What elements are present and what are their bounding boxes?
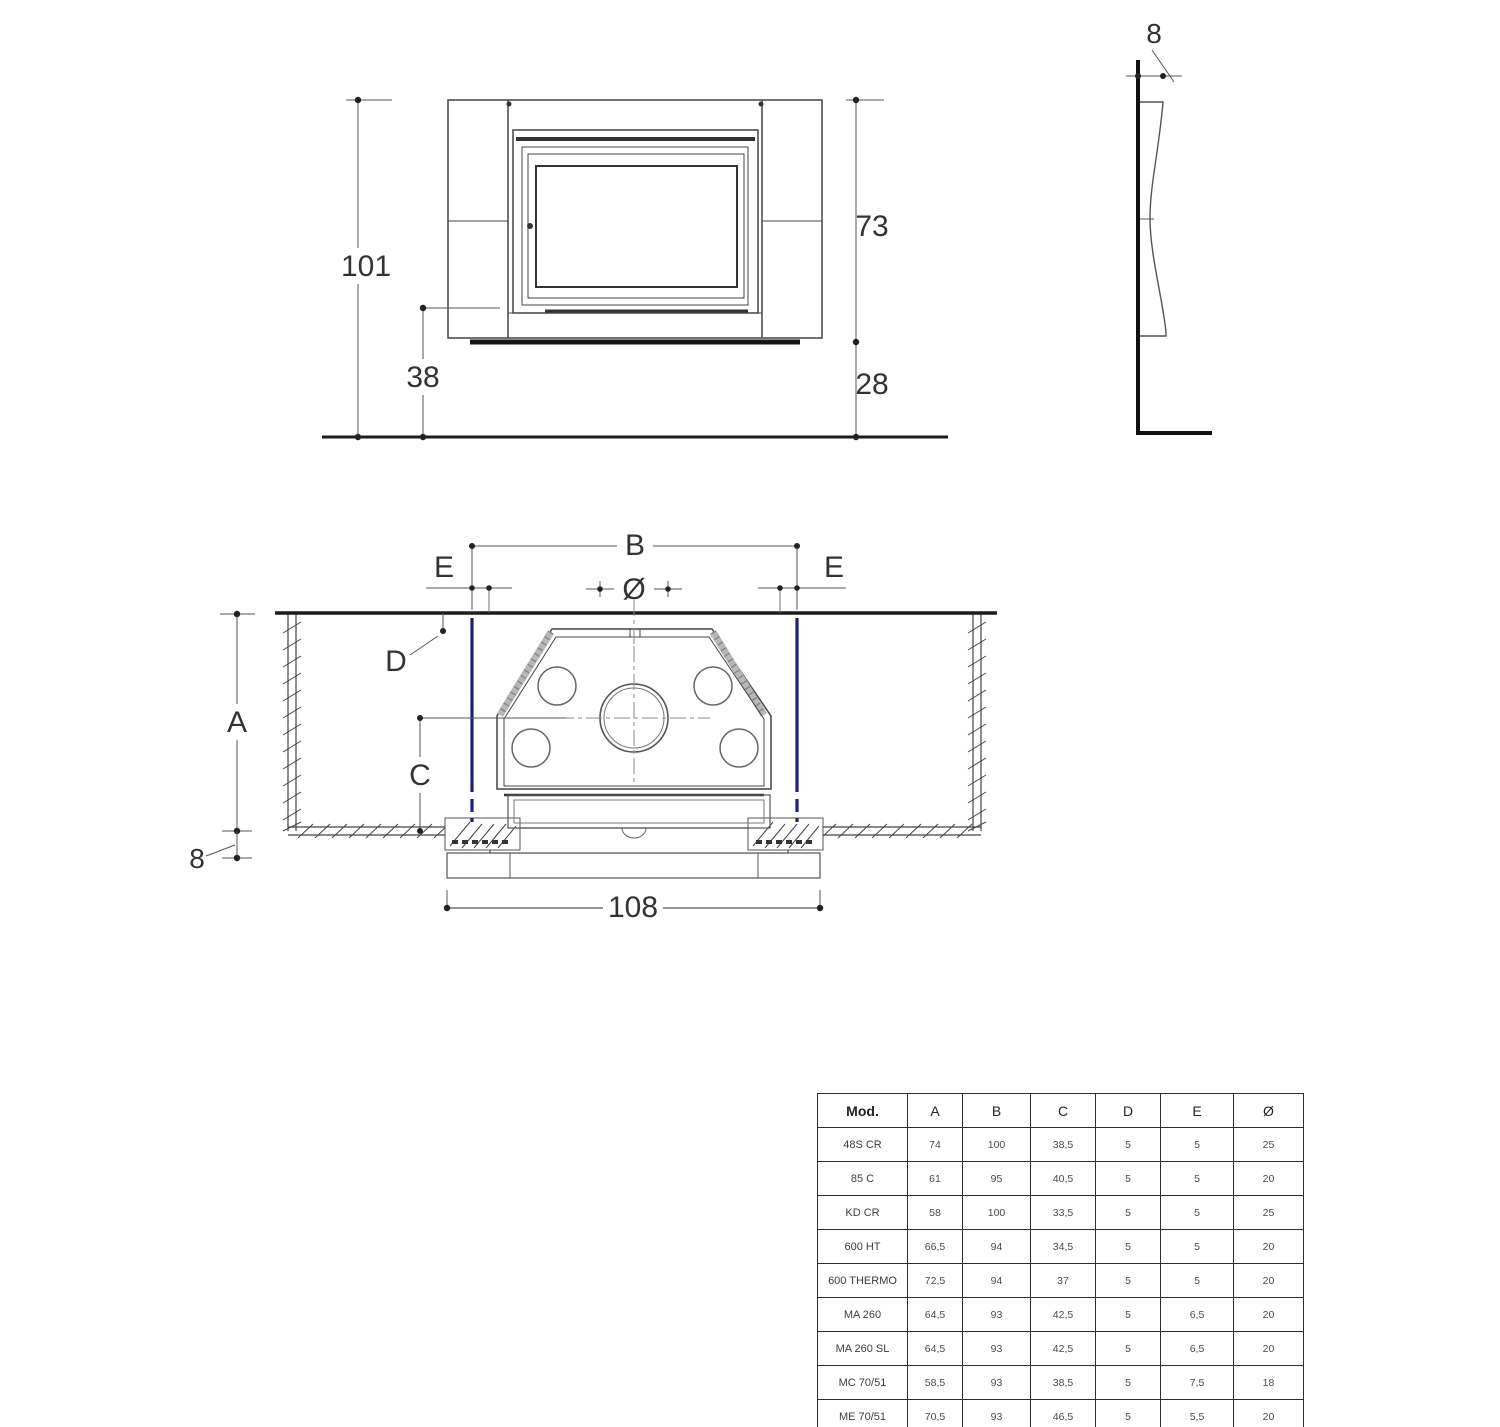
table-header-c: C: [1031, 1094, 1096, 1128]
table-header-a: A: [908, 1094, 963, 1128]
table-row: MA 260 64,5 93 42,5 5 6,5 20: [818, 1298, 1304, 1332]
firebox-door: [508, 130, 762, 313]
model-name: 600 THERMO: [818, 1264, 908, 1298]
dim-C-label: C: [409, 759, 431, 792]
dim-101: 101: [340, 97, 392, 440]
table-row: 600 HT 66,5 94 34,5 5 5 20: [818, 1230, 1304, 1264]
dim-108: 108: [444, 889, 823, 925]
table-header-diameter: Ø: [1234, 1094, 1304, 1128]
table-row: KD CR 58 100 33,5 5 5 25: [818, 1196, 1304, 1230]
dim-diameter-label: Ø: [622, 573, 645, 606]
table-row: ME 70/51 70,5 93 46,5 5 5,5 20: [818, 1400, 1304, 1427]
front-view-drawing: 101 73 28 38: [322, 97, 948, 440]
dim-101-label: 101: [341, 250, 391, 283]
dim-8-plan: 8: [189, 831, 252, 874]
table-header-mod: Mod.: [818, 1094, 908, 1128]
dim-D: D: [385, 613, 446, 678]
side-view-drawing: 8: [1126, 18, 1212, 435]
unit-body-plan: [497, 600, 771, 838]
table-row: 85 C 61 95 40,5 5 5 20: [818, 1162, 1304, 1196]
dim-A-label: A: [227, 706, 247, 739]
table-row: MA 260 SL 64,5 93 42,5 5 6,5 20: [818, 1332, 1304, 1366]
dim-E-left: E: [426, 551, 512, 613]
model-name: ME 70/51: [818, 1400, 908, 1427]
table-header-b: B: [963, 1094, 1031, 1128]
table-header-row: Mod. A B C D E Ø: [818, 1094, 1304, 1128]
dim-E-right: E: [758, 551, 846, 613]
model-name: MA 260 SL: [818, 1332, 908, 1366]
dim-8-side-label: 8: [1146, 18, 1162, 49]
model-name: 48S CR: [818, 1128, 908, 1162]
door-handle: [527, 223, 533, 229]
dim-28-label: 28: [855, 368, 888, 401]
dim-73-label: 73: [855, 210, 888, 243]
dim-38-label: 38: [406, 361, 439, 394]
technical-drawing-page: 101 73 28 38: [0, 0, 1500, 1427]
model-name: 85 C: [818, 1162, 908, 1196]
model-name: 600 HT: [818, 1230, 908, 1264]
mantel-outline: [448, 100, 822, 338]
dim-E-right-label: E: [824, 551, 844, 584]
table-header-e: E: [1161, 1094, 1234, 1128]
dim-diameter: Ø: [586, 573, 682, 606]
dim-108-label: 108: [608, 891, 658, 924]
model-name: MA 260: [818, 1298, 908, 1332]
dim-73-28: 73 28: [846, 97, 889, 440]
plan-view-drawing: B E E Ø: [189, 527, 997, 925]
dim-38: 38: [400, 305, 500, 440]
dim-D-label: D: [385, 645, 407, 678]
dim-8-plan-label: 8: [189, 843, 205, 874]
dim-E-left-label: E: [434, 551, 454, 584]
table-row: 48S CR 74 100 38,5 5 5 25: [818, 1128, 1304, 1162]
table-row: MC 70/51 58,5 93 38,5 5 7,5 18: [818, 1366, 1304, 1400]
dim-8-side: 8: [1126, 18, 1182, 82]
dimensions-table: Mod. A B C D E Ø 48S CR 74 100 38,5 5 5 …: [817, 1093, 1304, 1427]
table-header-d: D: [1096, 1094, 1161, 1128]
door-glass: [536, 166, 737, 287]
dim-B-label: B: [625, 529, 645, 562]
model-name: MC 70/51: [818, 1366, 908, 1400]
model-name: KD CR: [818, 1196, 908, 1230]
table-row: 600 THERMO 72,5 94 37 5 5 20: [818, 1264, 1304, 1298]
dim-A: A: [219, 611, 255, 834]
